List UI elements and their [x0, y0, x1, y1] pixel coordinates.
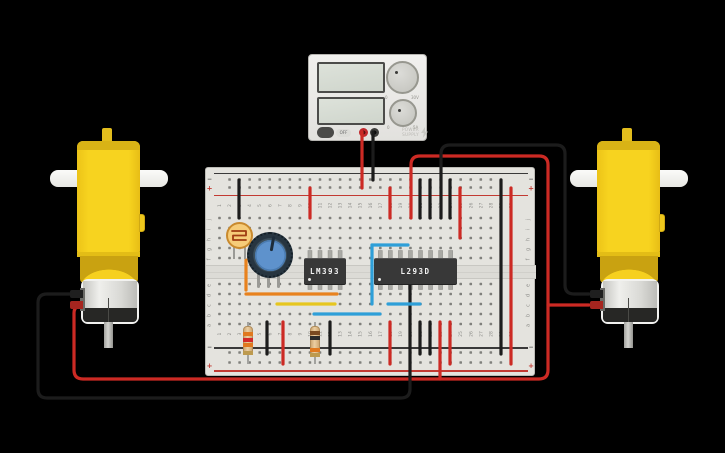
svg-text:2: 2: [227, 332, 233, 335]
ic-lm393[interactable]: LM393: [304, 258, 346, 284]
motor-cap: [603, 308, 657, 322]
motor-terminal-positive[interactable]: [70, 301, 83, 309]
svg-text:13: 13: [338, 331, 344, 337]
svg-text:27: 27: [478, 203, 484, 209]
svg-text:17: 17: [378, 331, 384, 337]
motor-cap: [83, 308, 137, 322]
svg-text:15: 15: [358, 203, 364, 209]
motor-gearbox: [597, 141, 660, 257]
svg-text:c: c: [526, 304, 532, 307]
svg-text:j: j: [207, 219, 213, 221]
svg-text:7: 7: [277, 204, 283, 207]
svg-text:28: 28: [488, 331, 494, 337]
svg-text:a: a: [526, 324, 532, 327]
svg-text:5: 5: [257, 332, 263, 335]
svg-text:a: a: [207, 324, 213, 327]
motor-shaft-line: [108, 298, 110, 323]
svg-text:i: i: [526, 229, 532, 230]
resistor-band: [310, 336, 320, 340]
svg-text:8: 8: [287, 332, 293, 335]
svg-text:1: 1: [217, 204, 223, 207]
motor-can: [603, 281, 657, 309]
svg-text:+: +: [207, 185, 213, 193]
svg-text:5: 5: [257, 204, 263, 207]
svg-text:f: f: [207, 258, 213, 260]
svg-text:f: f: [526, 258, 532, 260]
svg-text:16: 16: [368, 203, 374, 209]
svg-text:g: g: [526, 248, 532, 251]
svg-text:1: 1: [217, 332, 223, 335]
pin1-dot: [308, 278, 311, 281]
motor-terminal-positive[interactable]: [590, 301, 603, 309]
motor-rear-shaft: [104, 322, 113, 348]
svg-text:i: i: [207, 229, 213, 230]
svg-text:9: 9: [297, 332, 303, 335]
motor-can: [83, 281, 137, 309]
svg-text:16: 16: [368, 331, 374, 337]
svg-text:4: 4: [247, 204, 253, 207]
svg-text:26: 26: [468, 331, 474, 337]
svg-text:15: 15: [358, 331, 364, 337]
pin1-dot: [378, 278, 381, 281]
resistor-band: [243, 338, 253, 342]
svg-text:d: d: [207, 294, 213, 297]
motor-rear-shaft: [624, 322, 633, 348]
ic-label: LM393: [304, 267, 346, 276]
motor-tab: [139, 214, 145, 232]
svg-text:9: 9: [297, 204, 303, 207]
svg-text:h: h: [526, 238, 532, 241]
ic-l293d[interactable]: L293D: [374, 258, 457, 284]
svg-text:19: 19: [398, 331, 404, 337]
motor-tab: [659, 214, 665, 232]
svg-text:b: b: [207, 314, 213, 317]
svg-text:26: 26: [468, 203, 474, 209]
motor-terminal-negative[interactable]: [590, 290, 603, 298]
motor-shaft-line: [628, 298, 630, 323]
svg-text:−: −: [528, 344, 533, 351]
resistor-band: [310, 353, 320, 357]
svg-text:+: +: [528, 362, 534, 370]
svg-text:e: e: [207, 284, 213, 287]
resistor-band: [243, 343, 253, 347]
motor-gearbox: [77, 141, 140, 257]
svg-text:e: e: [526, 284, 532, 287]
svg-text:h: h: [207, 238, 213, 241]
svg-text:c: c: [207, 304, 213, 307]
svg-text:−: −: [207, 176, 212, 183]
svg-text:+: +: [528, 185, 534, 193]
resistor-band: [243, 351, 253, 355]
left-motor[interactable]: [40, 126, 180, 356]
svg-text:13: 13: [338, 203, 344, 209]
svg-text:−: −: [207, 344, 212, 351]
resistor-band: [310, 348, 320, 352]
svg-text:19: 19: [398, 203, 404, 209]
svg-text:d: d: [526, 294, 532, 297]
resistor-band: [310, 331, 320, 335]
svg-text:+: +: [207, 362, 213, 370]
resistor-band: [243, 332, 253, 336]
svg-text:2: 2: [227, 204, 233, 207]
circuit-canvas: 0 30V 0 5A OFF POWER SUPPLY 123456789101…: [0, 0, 725, 453]
svg-text:27: 27: [478, 331, 484, 337]
svg-text:6: 6: [267, 204, 273, 207]
svg-text:j: j: [526, 219, 532, 221]
right-motor[interactable]: [560, 126, 700, 356]
motor-terminal-negative[interactable]: [70, 290, 83, 298]
svg-text:25: 25: [458, 331, 464, 337]
svg-text:12: 12: [328, 203, 334, 209]
svg-text:b: b: [526, 314, 532, 317]
svg-text:28: 28: [488, 203, 494, 209]
svg-text:17: 17: [378, 203, 384, 209]
svg-text:11: 11: [318, 203, 324, 209]
potentiometer[interactable]: [247, 232, 293, 294]
svg-text:g: g: [207, 248, 213, 251]
ic-label: L293D: [374, 267, 457, 276]
svg-text:14: 14: [348, 203, 354, 209]
svg-text:−: −: [528, 176, 533, 183]
svg-text:8: 8: [287, 204, 293, 207]
svg-text:14: 14: [348, 331, 354, 337]
